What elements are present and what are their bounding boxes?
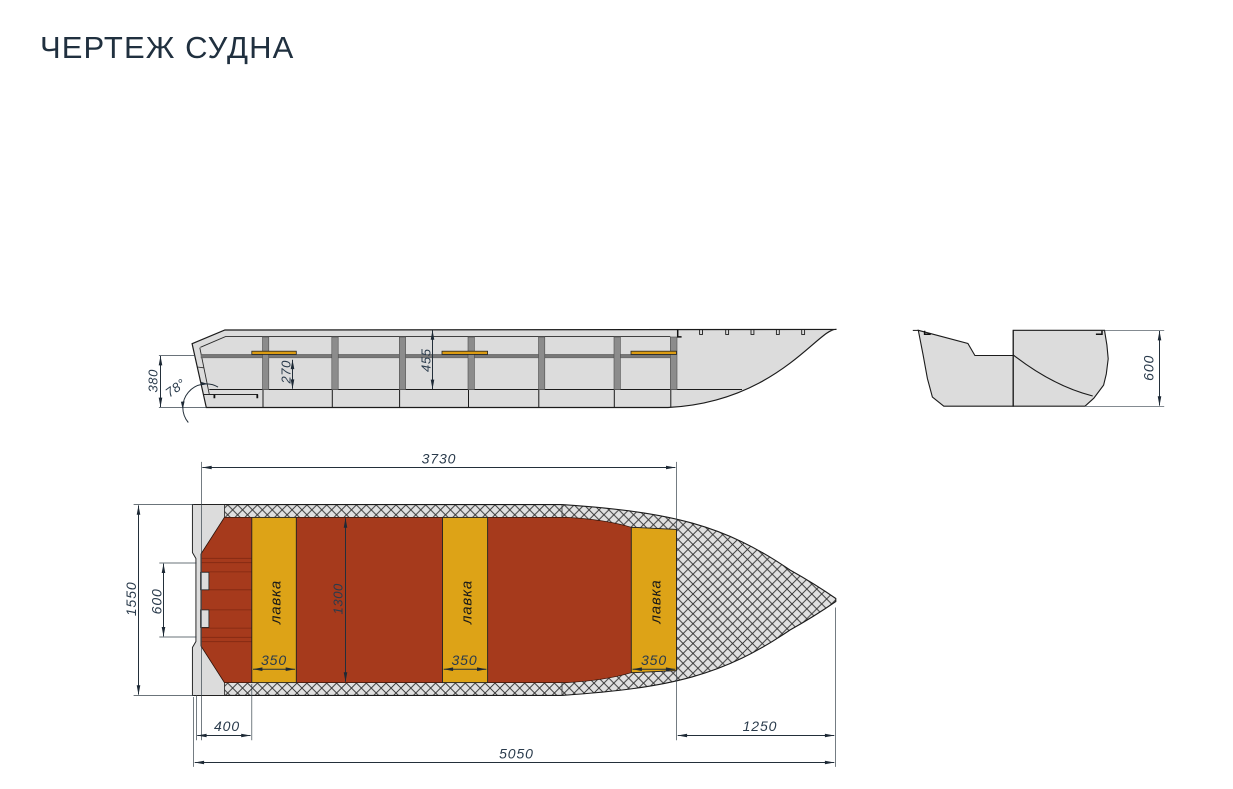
svg-text:380: 380	[145, 369, 160, 393]
svg-text:350: 350	[641, 652, 667, 668]
svg-text:78°: 78°	[162, 375, 188, 400]
svg-text:455: 455	[418, 348, 433, 372]
svg-text:600: 600	[1141, 355, 1157, 381]
svg-text:лавка: лавка	[459, 580, 476, 625]
svg-text:лавка: лавка	[648, 579, 665, 624]
svg-text:400: 400	[214, 718, 240, 734]
svg-text:3730: 3730	[422, 450, 457, 466]
svg-text:1250: 1250	[743, 718, 778, 734]
svg-text:270: 270	[279, 360, 294, 385]
svg-text:350: 350	[261, 652, 287, 668]
svg-text:600: 600	[148, 588, 164, 614]
svg-text:350: 350	[451, 652, 477, 668]
svg-text:5050: 5050	[499, 745, 534, 761]
svg-text:1550: 1550	[123, 581, 139, 616]
svg-text:лавка: лавка	[268, 580, 285, 625]
svg-text:1300: 1300	[331, 583, 346, 614]
svg-text:ЧЕРТЕЖ СУДНА: ЧЕРТЕЖ СУДНА	[40, 30, 294, 65]
